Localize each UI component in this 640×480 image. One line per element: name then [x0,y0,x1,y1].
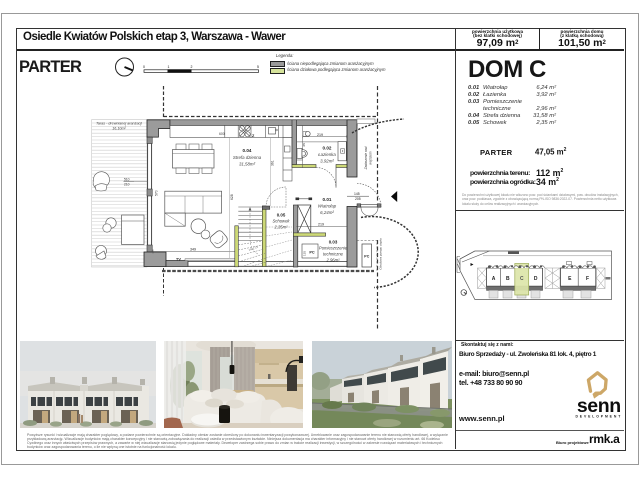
svg-text:F: F [586,276,589,282]
svg-text:5: 5 [257,65,259,69]
svg-text:DEVELOPMENT: DEVELOPMENT [575,415,622,419]
svg-text:2,35m²: 2,35m² [273,225,288,230]
svg-text:wejściem: wejściem [369,151,373,164]
svg-text:techniczne: techniczne [323,252,344,257]
svg-text:135: 135 [303,251,307,256]
svg-text:0.04: 0.04 [243,148,252,153]
svg-text:510: 510 [124,178,130,182]
svg-text:0: 0 [143,65,145,69]
svg-text:145: 145 [354,192,360,196]
svg-text:Schowek: Schowek [273,219,291,224]
svg-text:210: 210 [124,182,130,186]
svg-text:C: C [520,276,524,282]
svg-text:6,24m²: 6,24m² [320,210,334,215]
svg-text:0.02: 0.02 [323,146,332,151]
svg-text:205: 205 [355,197,361,201]
svg-text:Pomieszczenie: Pomieszczenie [319,246,348,251]
svg-text:A: A [492,276,496,282]
svg-text:Łazienka: Łazienka [318,152,336,157]
svg-text:600: 600 [219,132,225,136]
svg-text:TV: TV [176,257,181,261]
svg-text:570: 570 [155,190,159,196]
svg-text:65: 65 [302,143,306,147]
svg-text:3,92m²: 3,92m² [320,159,334,164]
svg-text:628: 628 [230,194,234,200]
svg-text:16,10m²: 16,10m² [112,127,126,131]
svg-text:D: D [534,276,538,282]
svg-text:2,96m²: 2,96m² [325,258,340,263]
svg-text:1: 1 [168,65,170,69]
svg-text:PC: PC [364,255,369,259]
svg-text:Zadaszenie nad: Zadaszenie nad [364,146,368,170]
svg-text:31,58m²: 31,58m² [239,162,256,167]
svg-text:Obudowa pompy ciepła: Obudowa pompy ciepła [379,238,383,270]
svg-text:0.05: 0.05 [277,213,286,218]
svg-text:Taras - drewnianej aranżacji: Taras - drewnianej aranżacji [96,122,142,126]
svg-text:219: 219 [317,133,323,137]
svg-text:14x17,5: 14x17,5 [248,245,259,252]
svg-text:2: 2 [191,65,193,69]
svg-text:219: 219 [318,222,324,226]
svg-text:0.01: 0.01 [323,197,332,202]
svg-text:Wiatrołap: Wiatrołap [318,204,337,209]
svg-text:349: 349 [190,247,196,251]
svg-text:361: 361 [271,160,275,166]
svg-text:B: B [506,276,510,282]
svg-text:Strefa dzienna: Strefa dzienna [233,155,262,160]
svg-text:PC: PC [309,251,315,255]
svg-text:0.03: 0.03 [329,240,338,245]
